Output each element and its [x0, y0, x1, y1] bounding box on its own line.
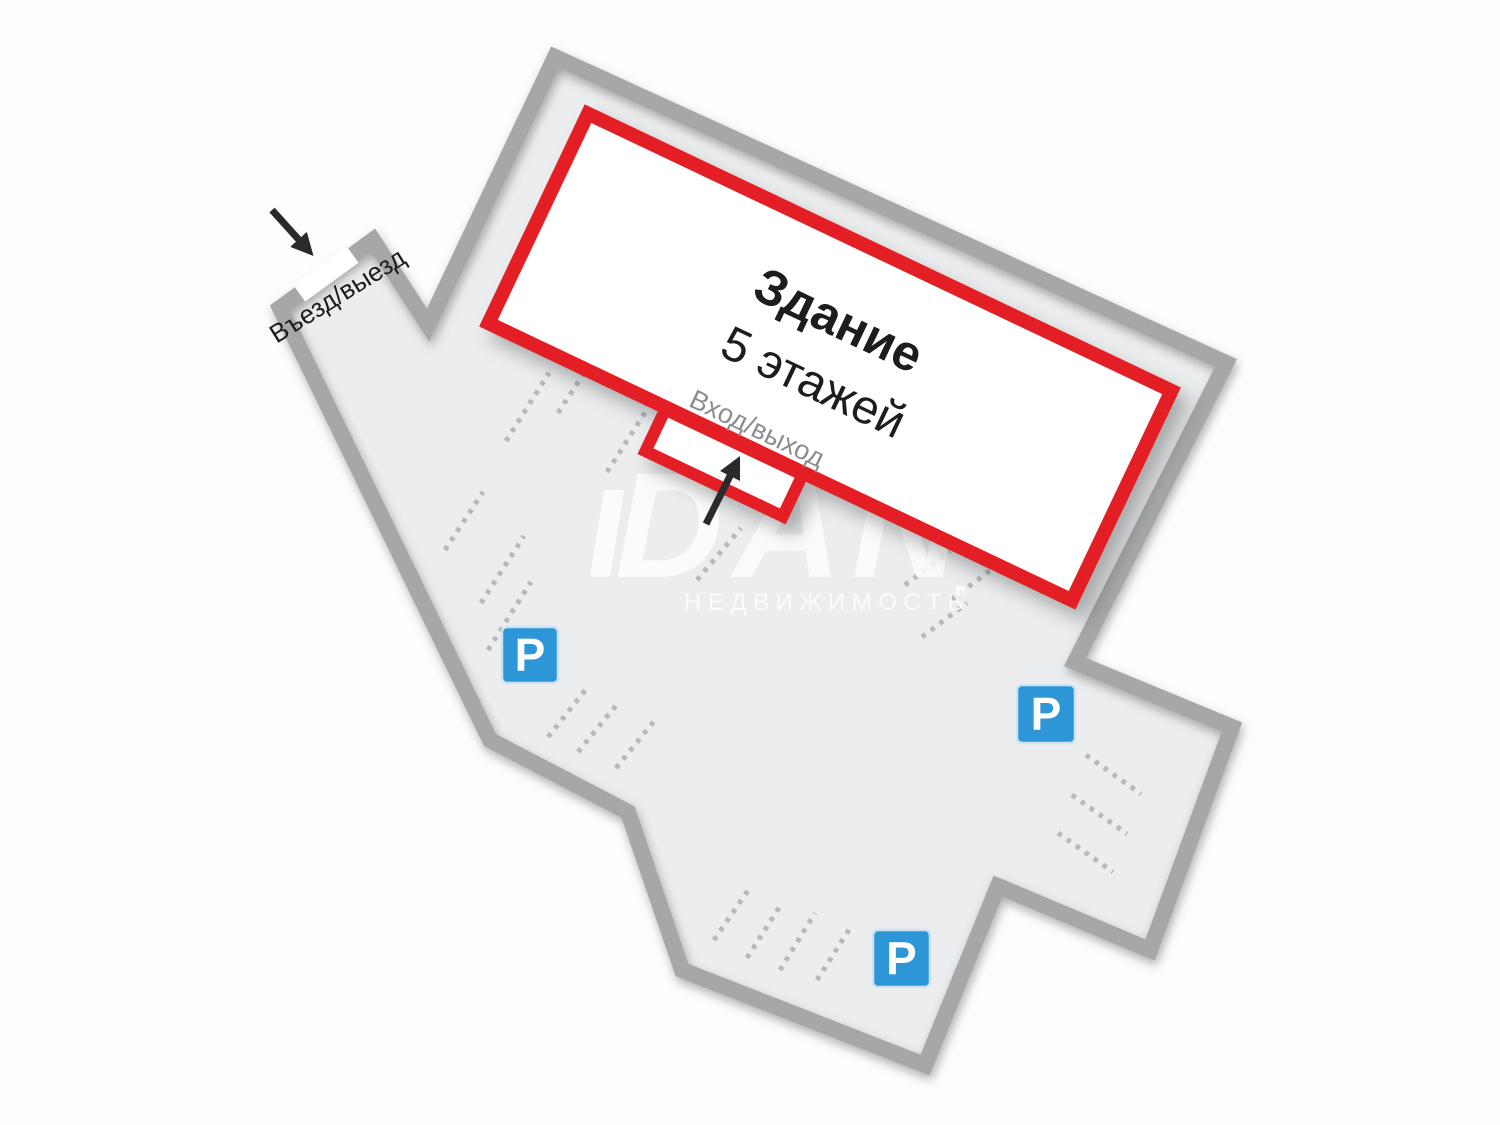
parking-sign-letter: P	[515, 629, 546, 681]
parking-sign-letter: P	[1031, 688, 1062, 740]
site-plan: DAN НЕДВИЖИМОСТЬ Въезд/выезд Здание 5 эт…	[0, 0, 1500, 1125]
watermark-dot	[956, 586, 965, 595]
parking-sign: P	[873, 930, 930, 987]
parking-sign-letter: P	[886, 933, 917, 985]
gate-arrow	[272, 210, 300, 241]
parking-sign: P	[1017, 685, 1075, 743]
watermark-subtitle: НЕДВИЖИМОСТЬ	[684, 589, 970, 616]
parking-sign: P	[502, 627, 558, 683]
